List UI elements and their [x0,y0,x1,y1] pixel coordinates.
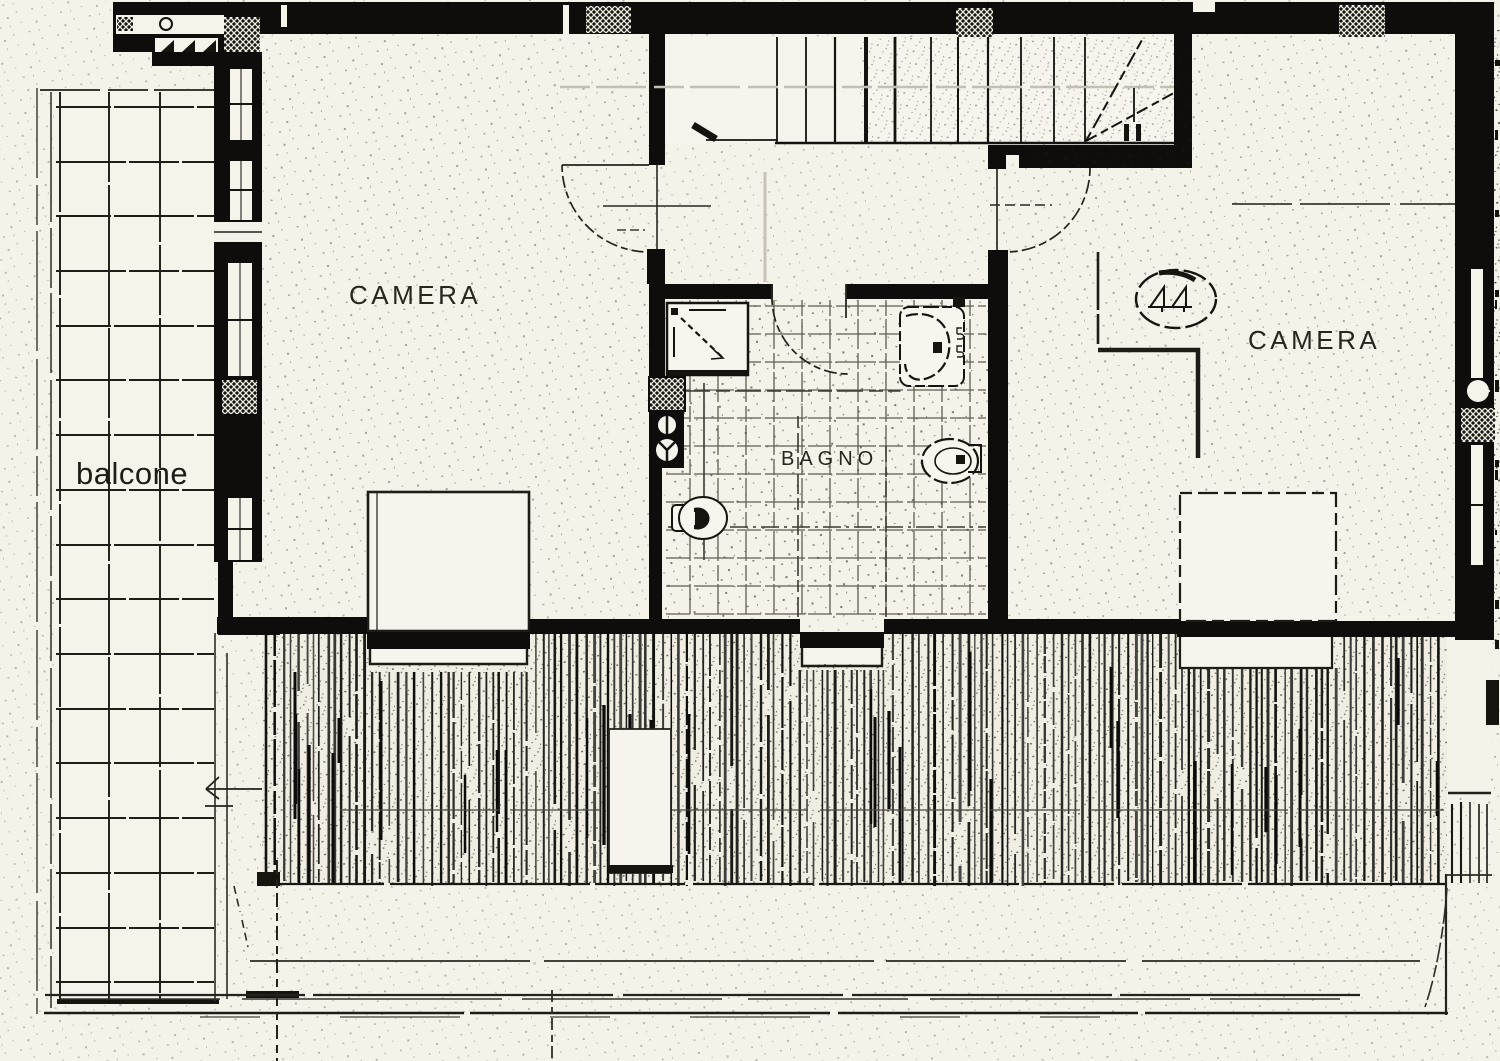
svg-text:balcone: balcone [76,456,188,491]
svg-text:BAGNO: BAGNO [781,448,878,470]
